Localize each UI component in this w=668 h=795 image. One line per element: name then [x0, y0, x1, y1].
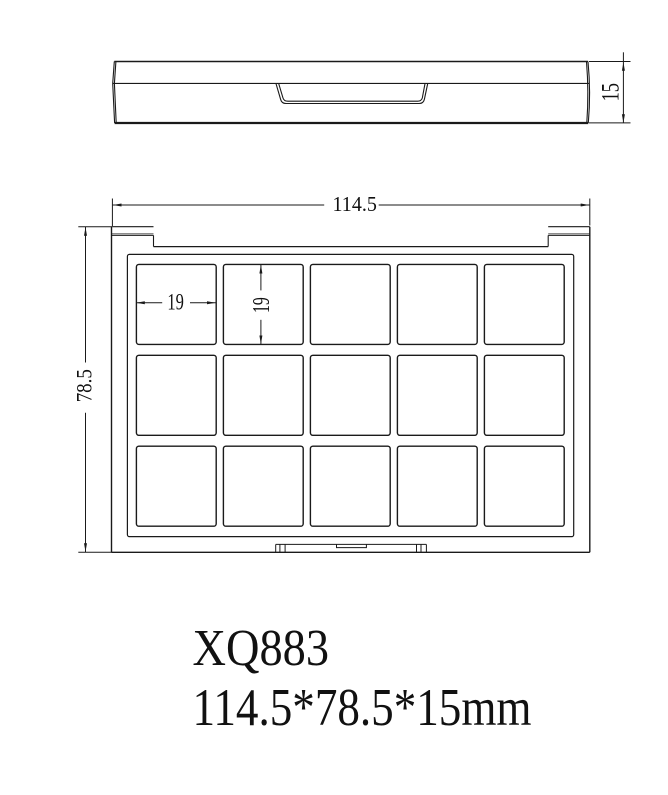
svg-text:19: 19 — [248, 297, 275, 313]
svg-text:78.5: 78.5 — [72, 369, 97, 402]
svg-text:15: 15 — [595, 83, 624, 101]
svg-text:19: 19 — [167, 290, 184, 316]
svg-text:114.5*78.5*15mm: 114.5*78.5*15mm — [193, 679, 532, 737]
svg-text:114.5: 114.5 — [333, 192, 377, 216]
svg-text:XQ883: XQ883 — [193, 620, 330, 677]
